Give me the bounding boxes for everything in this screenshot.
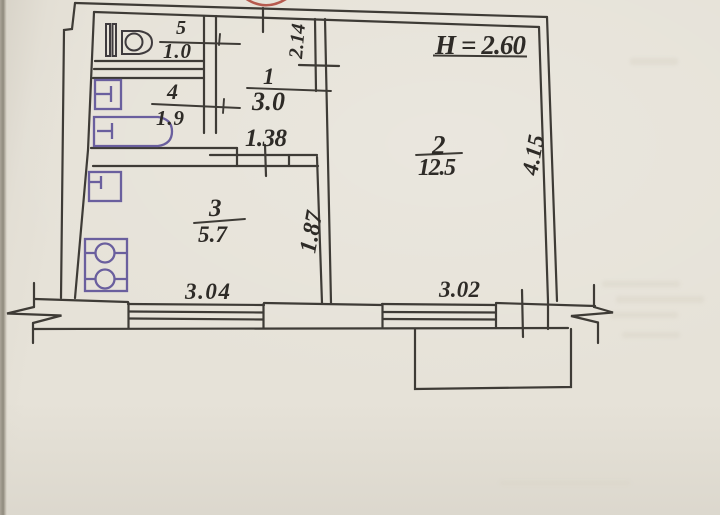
svg-text:5: 5 <box>176 17 186 39</box>
svg-text:5.7: 5.7 <box>198 222 229 247</box>
svg-text:3.04: 3.04 <box>184 279 230 304</box>
svg-text:1: 1 <box>263 64 275 89</box>
svg-text:1.9: 1.9 <box>156 106 185 130</box>
svg-text:1.87: 1.87 <box>295 208 328 255</box>
svg-text:2.14: 2.14 <box>285 23 310 61</box>
svg-text:3.02: 3.02 <box>438 277 480 302</box>
svg-text:4: 4 <box>166 79 178 104</box>
svg-text:1.0: 1.0 <box>163 39 192 63</box>
svg-text:3: 3 <box>208 195 222 222</box>
svg-text:1.38: 1.38 <box>245 125 288 152</box>
svg-text:12.5: 12.5 <box>418 155 456 181</box>
svg-text:3.0: 3.0 <box>251 87 285 116</box>
